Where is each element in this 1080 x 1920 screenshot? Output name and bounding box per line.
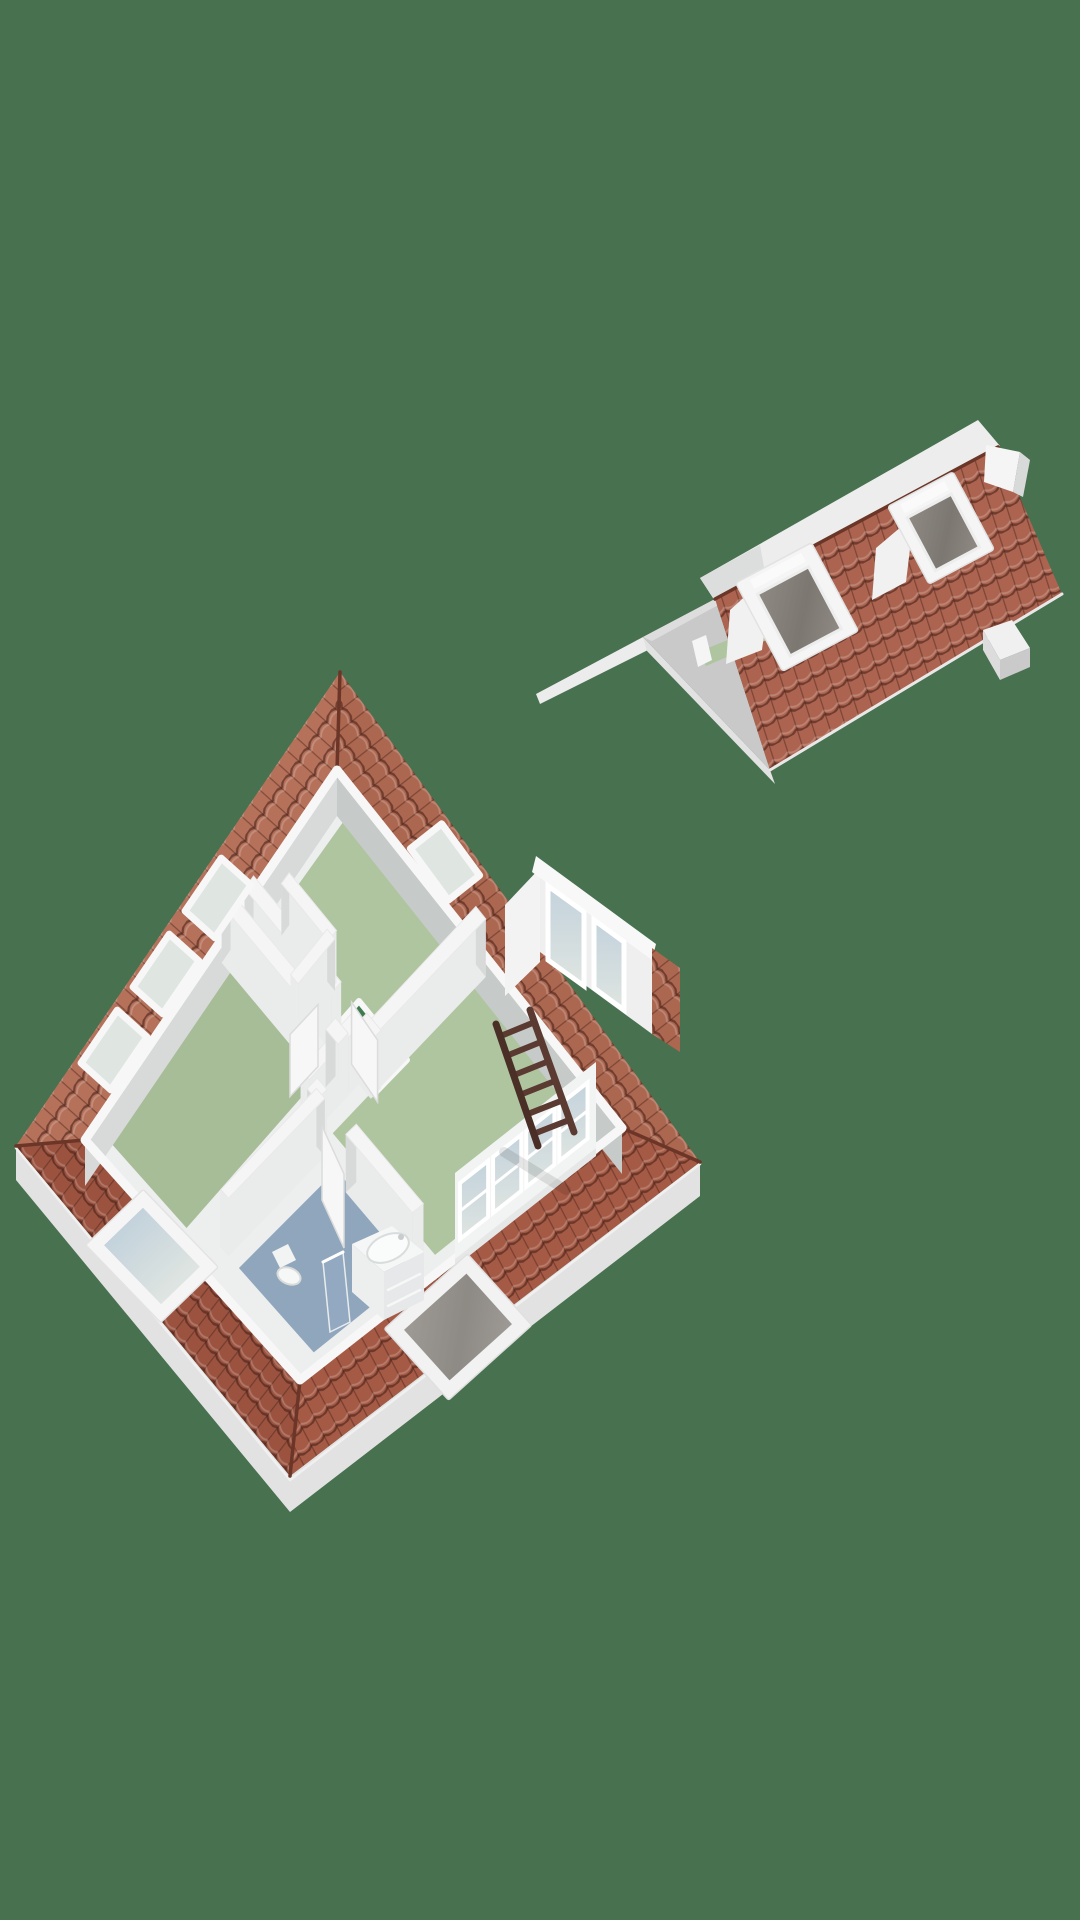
scene-canvas[interactable]	[0, 0, 1080, 1920]
wall-side-face	[221, 1190, 229, 1257]
vanity-faucet	[398, 1234, 404, 1240]
floor-plan-viewport[interactable]	[0, 0, 1080, 1920]
wall-side-face	[338, 1033, 348, 1102]
